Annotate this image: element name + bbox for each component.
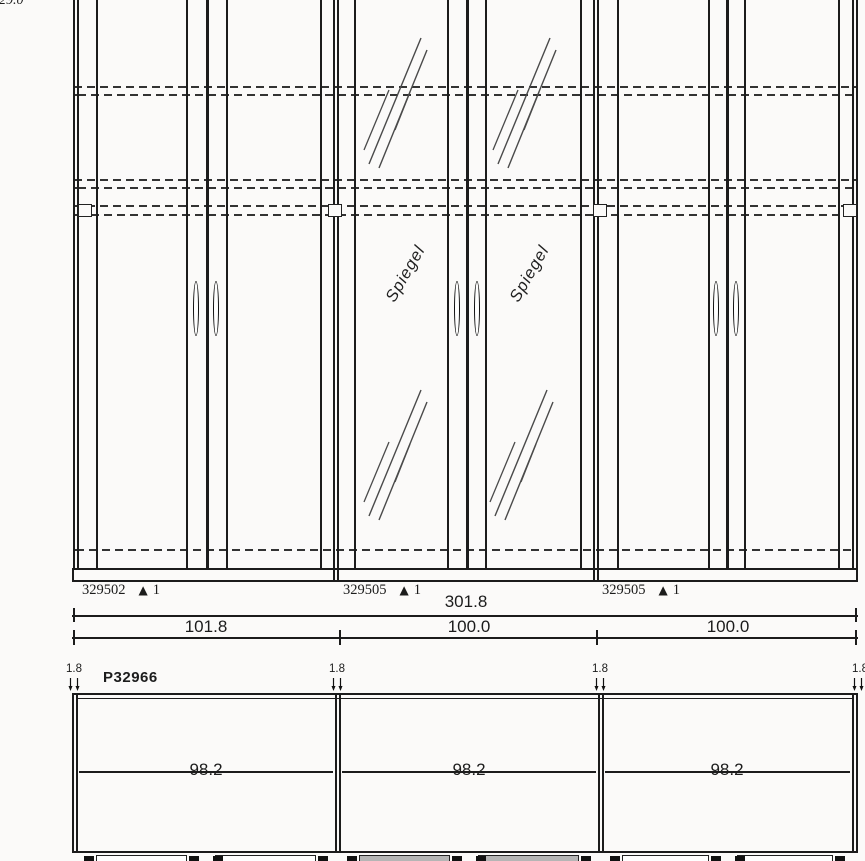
hinge-block xyxy=(835,856,845,861)
thickness-arrows-icon xyxy=(329,678,345,691)
door-slab xyxy=(96,855,187,861)
carcass-wall-line xyxy=(598,693,600,853)
carcass-wall-line xyxy=(852,693,854,853)
carcass-wall-line xyxy=(335,693,337,853)
inner-width-dimension-line xyxy=(79,771,333,773)
hinge-block xyxy=(610,856,620,861)
door-slab xyxy=(622,855,709,861)
inner-width-dimension-line xyxy=(605,771,850,773)
hinge-block xyxy=(711,856,721,861)
door-slab xyxy=(478,855,579,861)
carcass-back-line xyxy=(78,698,852,699)
hinge-block xyxy=(84,856,94,861)
door-slab xyxy=(737,855,834,861)
inner-width-dimension-line xyxy=(342,771,596,773)
carcass-wall-line xyxy=(76,693,78,853)
carcass-wall-line xyxy=(72,693,74,853)
door-slab xyxy=(215,855,316,861)
thickness-arrows-icon xyxy=(850,678,865,691)
carcass-wall-line xyxy=(602,693,604,853)
carcass-wall-line xyxy=(856,693,858,853)
hinge-block xyxy=(189,856,199,861)
hinge-block xyxy=(452,856,462,861)
carcass-front-line xyxy=(72,851,858,853)
thickness-arrows-icon xyxy=(66,678,82,691)
door-slab xyxy=(359,855,450,861)
technical-drawing: 29.0 Spiegel Spiegel 329502 ▲ 1 329505 ▲… xyxy=(0,0,865,861)
carcass-wall-line xyxy=(339,693,341,853)
hinge-block xyxy=(476,856,486,861)
hinge-block xyxy=(735,856,745,861)
hinge-block xyxy=(213,856,223,861)
hinge-block xyxy=(347,856,357,861)
thickness-arrows-icon xyxy=(592,678,608,691)
top-plan-view xyxy=(0,0,865,861)
hinge-block xyxy=(581,856,591,861)
hinge-block xyxy=(318,856,328,861)
carcass-top-line xyxy=(72,693,858,695)
